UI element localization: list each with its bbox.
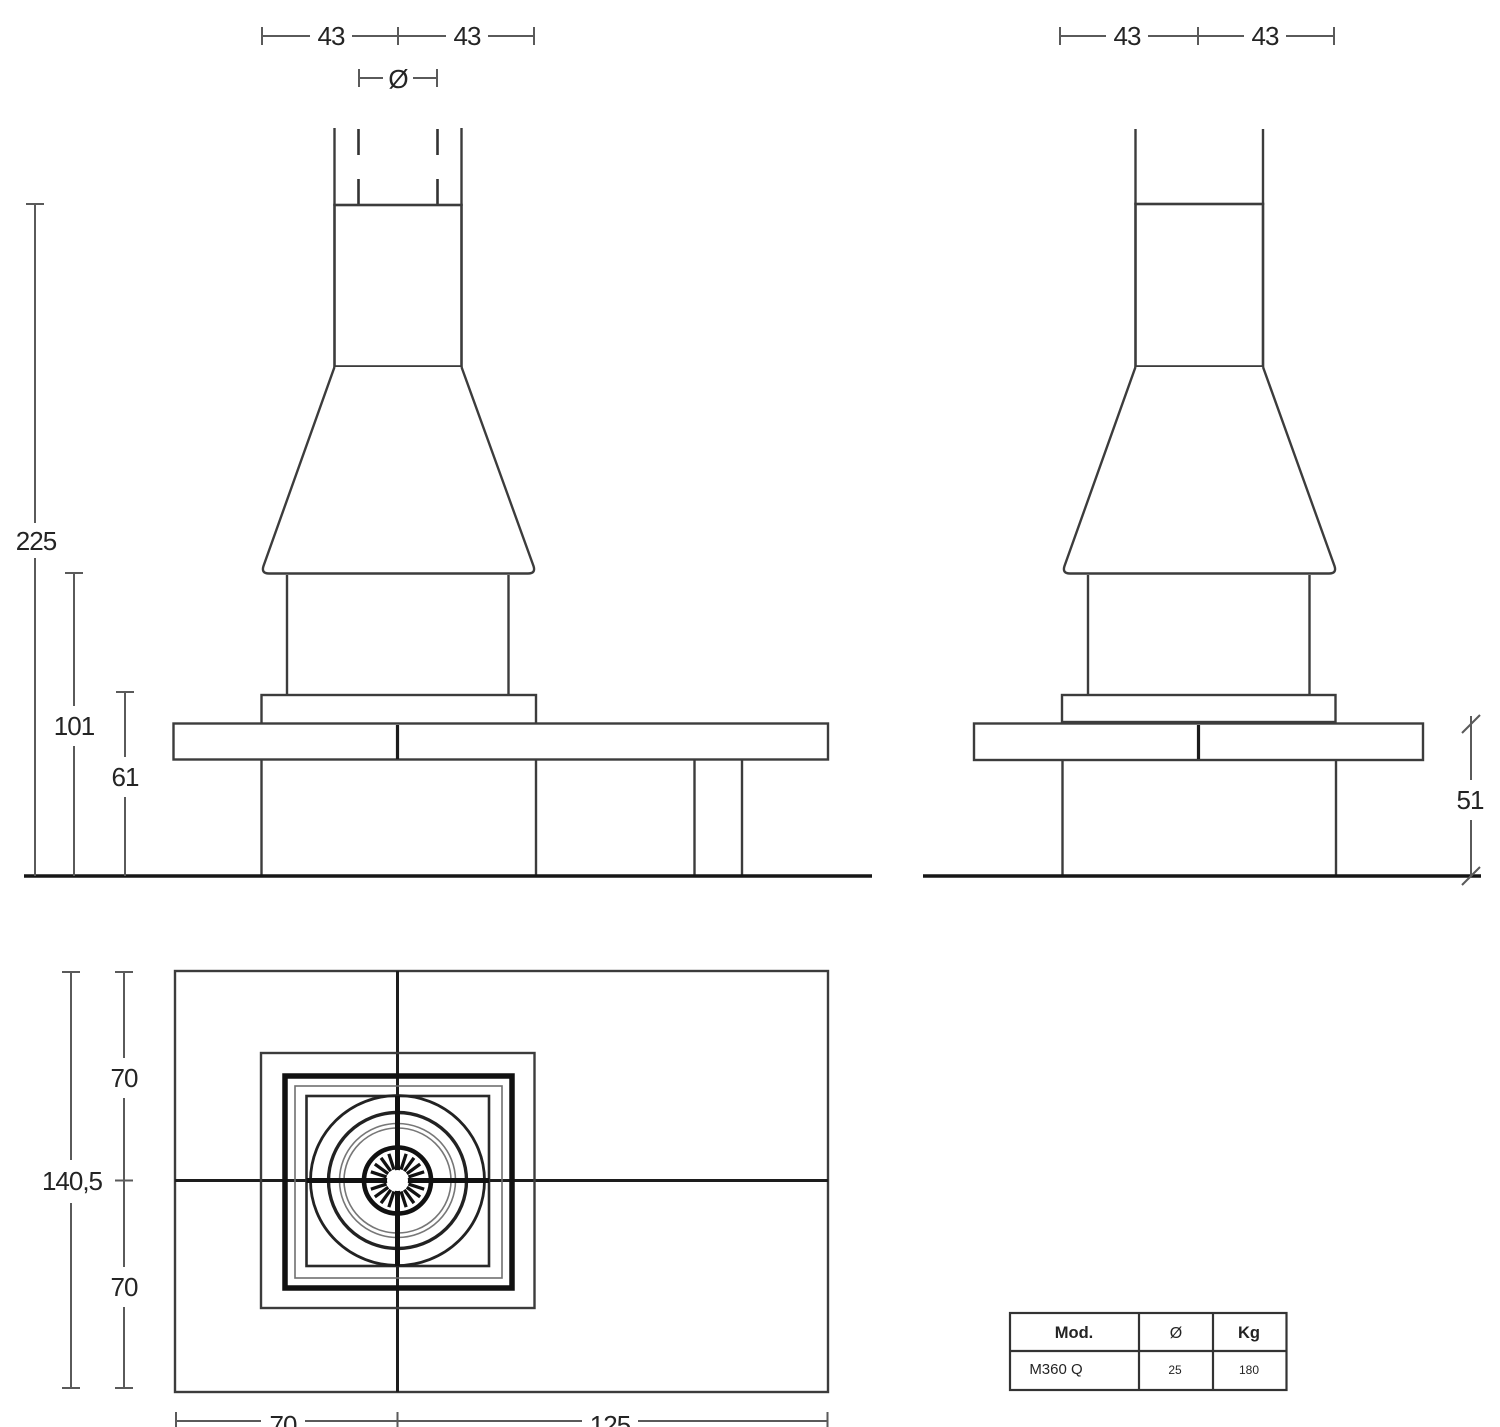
svg-text:43: 43 — [454, 21, 481, 51]
svg-text:M360 Q: M360 Q — [1029, 1361, 1082, 1378]
svg-text:70: 70 — [111, 1272, 138, 1302]
svg-text:43: 43 — [1252, 21, 1279, 51]
svg-text:Kg: Kg — [1238, 1324, 1260, 1342]
svg-text:180: 180 — [1239, 1363, 1259, 1377]
svg-text:43: 43 — [1114, 21, 1141, 51]
svg-text:140,5: 140,5 — [42, 1166, 103, 1196]
svg-text:51: 51 — [1457, 785, 1484, 815]
svg-text:25: 25 — [1168, 1363, 1182, 1377]
svg-text:225: 225 — [16, 526, 57, 556]
svg-text:70: 70 — [111, 1063, 138, 1093]
svg-text:125: 125 — [590, 1410, 631, 1427]
svg-text:Ø: Ø — [388, 64, 408, 94]
svg-text:Ø: Ø — [1170, 1325, 1182, 1342]
svg-text:Mod.: Mod. — [1055, 1324, 1094, 1342]
svg-text:70: 70 — [270, 1410, 297, 1427]
svg-text:101: 101 — [54, 711, 95, 741]
svg-text:61: 61 — [112, 762, 139, 792]
svg-text:43: 43 — [318, 21, 345, 51]
